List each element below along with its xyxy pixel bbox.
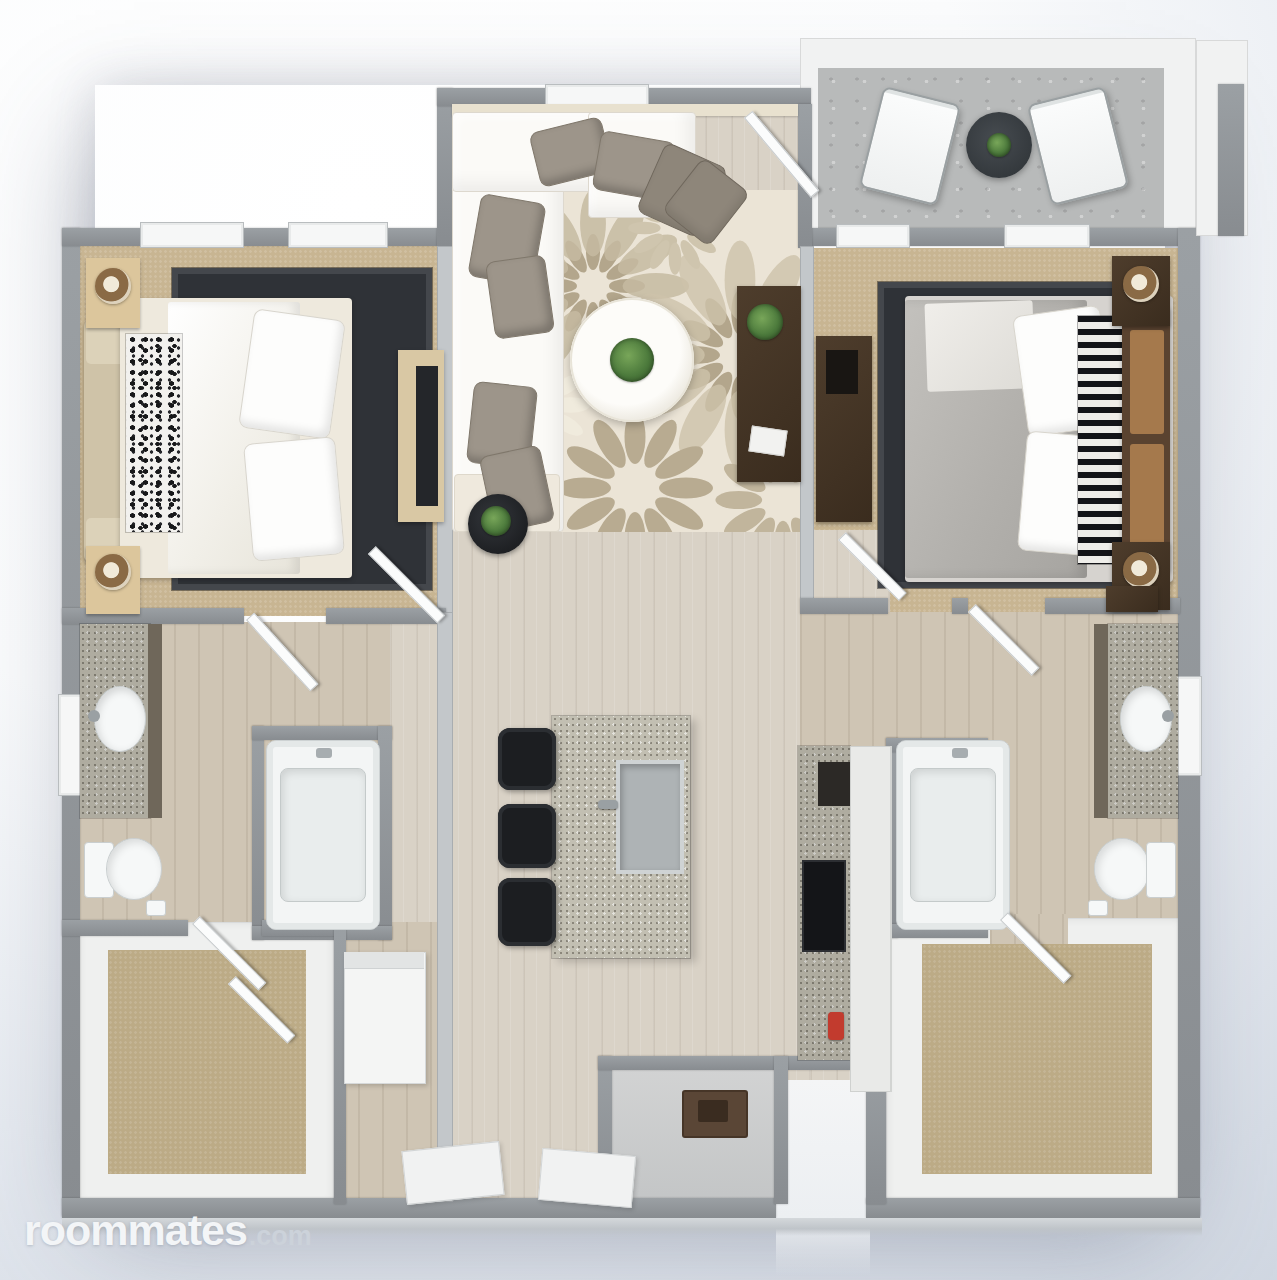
bathtub-1-faucet: [316, 748, 332, 758]
console-plant: [747, 304, 783, 340]
dresser-tv: [826, 350, 858, 394]
bathroom2-vanity-face: [1094, 624, 1108, 818]
wall-bedroom2-bath-a: [800, 598, 888, 614]
wall-dining-bedroom2: [800, 246, 814, 612]
bed1-pillow-1: [238, 308, 346, 440]
right-wall-window: [1176, 676, 1202, 776]
sofa-pillow-2: [485, 254, 555, 340]
entry-exterior-path: [776, 1080, 870, 1276]
wall-bath1-bottom-a: [62, 920, 188, 936]
bedroom1-window-1: [140, 222, 244, 248]
bar-stool-2: [498, 804, 556, 868]
bathtub-2-basin: [910, 768, 996, 902]
coffee-table-plant: [610, 338, 654, 382]
kitchen-hood: [818, 762, 850, 806]
toilet2-bowl: [1094, 838, 1150, 900]
entry-doormat-center: [698, 1100, 728, 1122]
lamp-1a: [95, 268, 131, 304]
neighbor-wall-gray: [1218, 84, 1244, 236]
kitchen-cooktop: [802, 860, 846, 952]
bedroom1-window-2: [288, 222, 388, 248]
bar-stool-1: [498, 728, 556, 790]
wall-step-living: [437, 88, 453, 246]
wall-top-bedroom1: [62, 228, 446, 246]
wall-bottom-right: [866, 1198, 1200, 1218]
toilet2-paper: [1088, 900, 1108, 916]
bedroom1-tv: [416, 366, 438, 506]
watermark: roommates .com: [24, 1206, 312, 1255]
closet1-carpet: [108, 950, 306, 1174]
watermark-tld: .com: [249, 1221, 312, 1252]
entry-ledge-1: [401, 1141, 504, 1205]
toilet1-paper: [146, 900, 166, 916]
closet2-carpet: [922, 944, 1152, 1174]
bar-stool-3: [498, 878, 556, 946]
lamp-1b: [95, 554, 131, 590]
bathroom1-faucet: [88, 710, 100, 722]
kitchen-tall-cabinets: [850, 746, 892, 1092]
toilet1-bowl: [106, 838, 162, 900]
bathroom1-vanity-face: [148, 624, 162, 818]
bed2-striped-runner: [1078, 316, 1126, 564]
wall-entry-jamb-left: [774, 1056, 788, 1204]
tub1-alcove-top: [252, 726, 392, 740]
bed2-headboard-cushion-1: [1130, 330, 1164, 434]
bathroom1-sink: [94, 686, 146, 752]
balcony-table-plant: [987, 133, 1011, 157]
bathroom2-shelf-basket: [1106, 586, 1158, 612]
side-table-plant: [481, 506, 511, 536]
island-faucet: [598, 800, 618, 809]
bedroom2-window-2: [1004, 224, 1090, 248]
fire-extinguisher: [828, 1012, 844, 1040]
lamp-2b: [1123, 552, 1159, 588]
toilet2-tank: [1146, 842, 1176, 898]
bathtub-2-faucet: [952, 748, 968, 758]
lamp-2a: [1123, 266, 1159, 302]
tub1-alcove-right: [378, 726, 392, 940]
wall-hallway-right: [437, 612, 453, 1202]
console-book: [748, 426, 787, 457]
tub1-alcove-left: [252, 726, 264, 940]
entry-ledge-2: [538, 1148, 636, 1208]
bed2-headboard-cushion-2: [1130, 444, 1164, 550]
laundry-appliance: [344, 952, 426, 1084]
bathroom2-faucet: [1162, 710, 1174, 722]
laundry-appliance-controls: [344, 952, 424, 969]
bed1-accent-runner: [126, 334, 182, 532]
bedroom2-window-1: [836, 224, 910, 248]
floor-plan-render: roommates .com: [0, 0, 1277, 1280]
island-sink: [616, 760, 684, 874]
wall-bedroom2-bath-post: [952, 598, 968, 614]
bed1-pillow-2: [243, 436, 345, 562]
bathtub-1-basin: [280, 768, 366, 902]
watermark-brand: roommates: [24, 1206, 247, 1255]
